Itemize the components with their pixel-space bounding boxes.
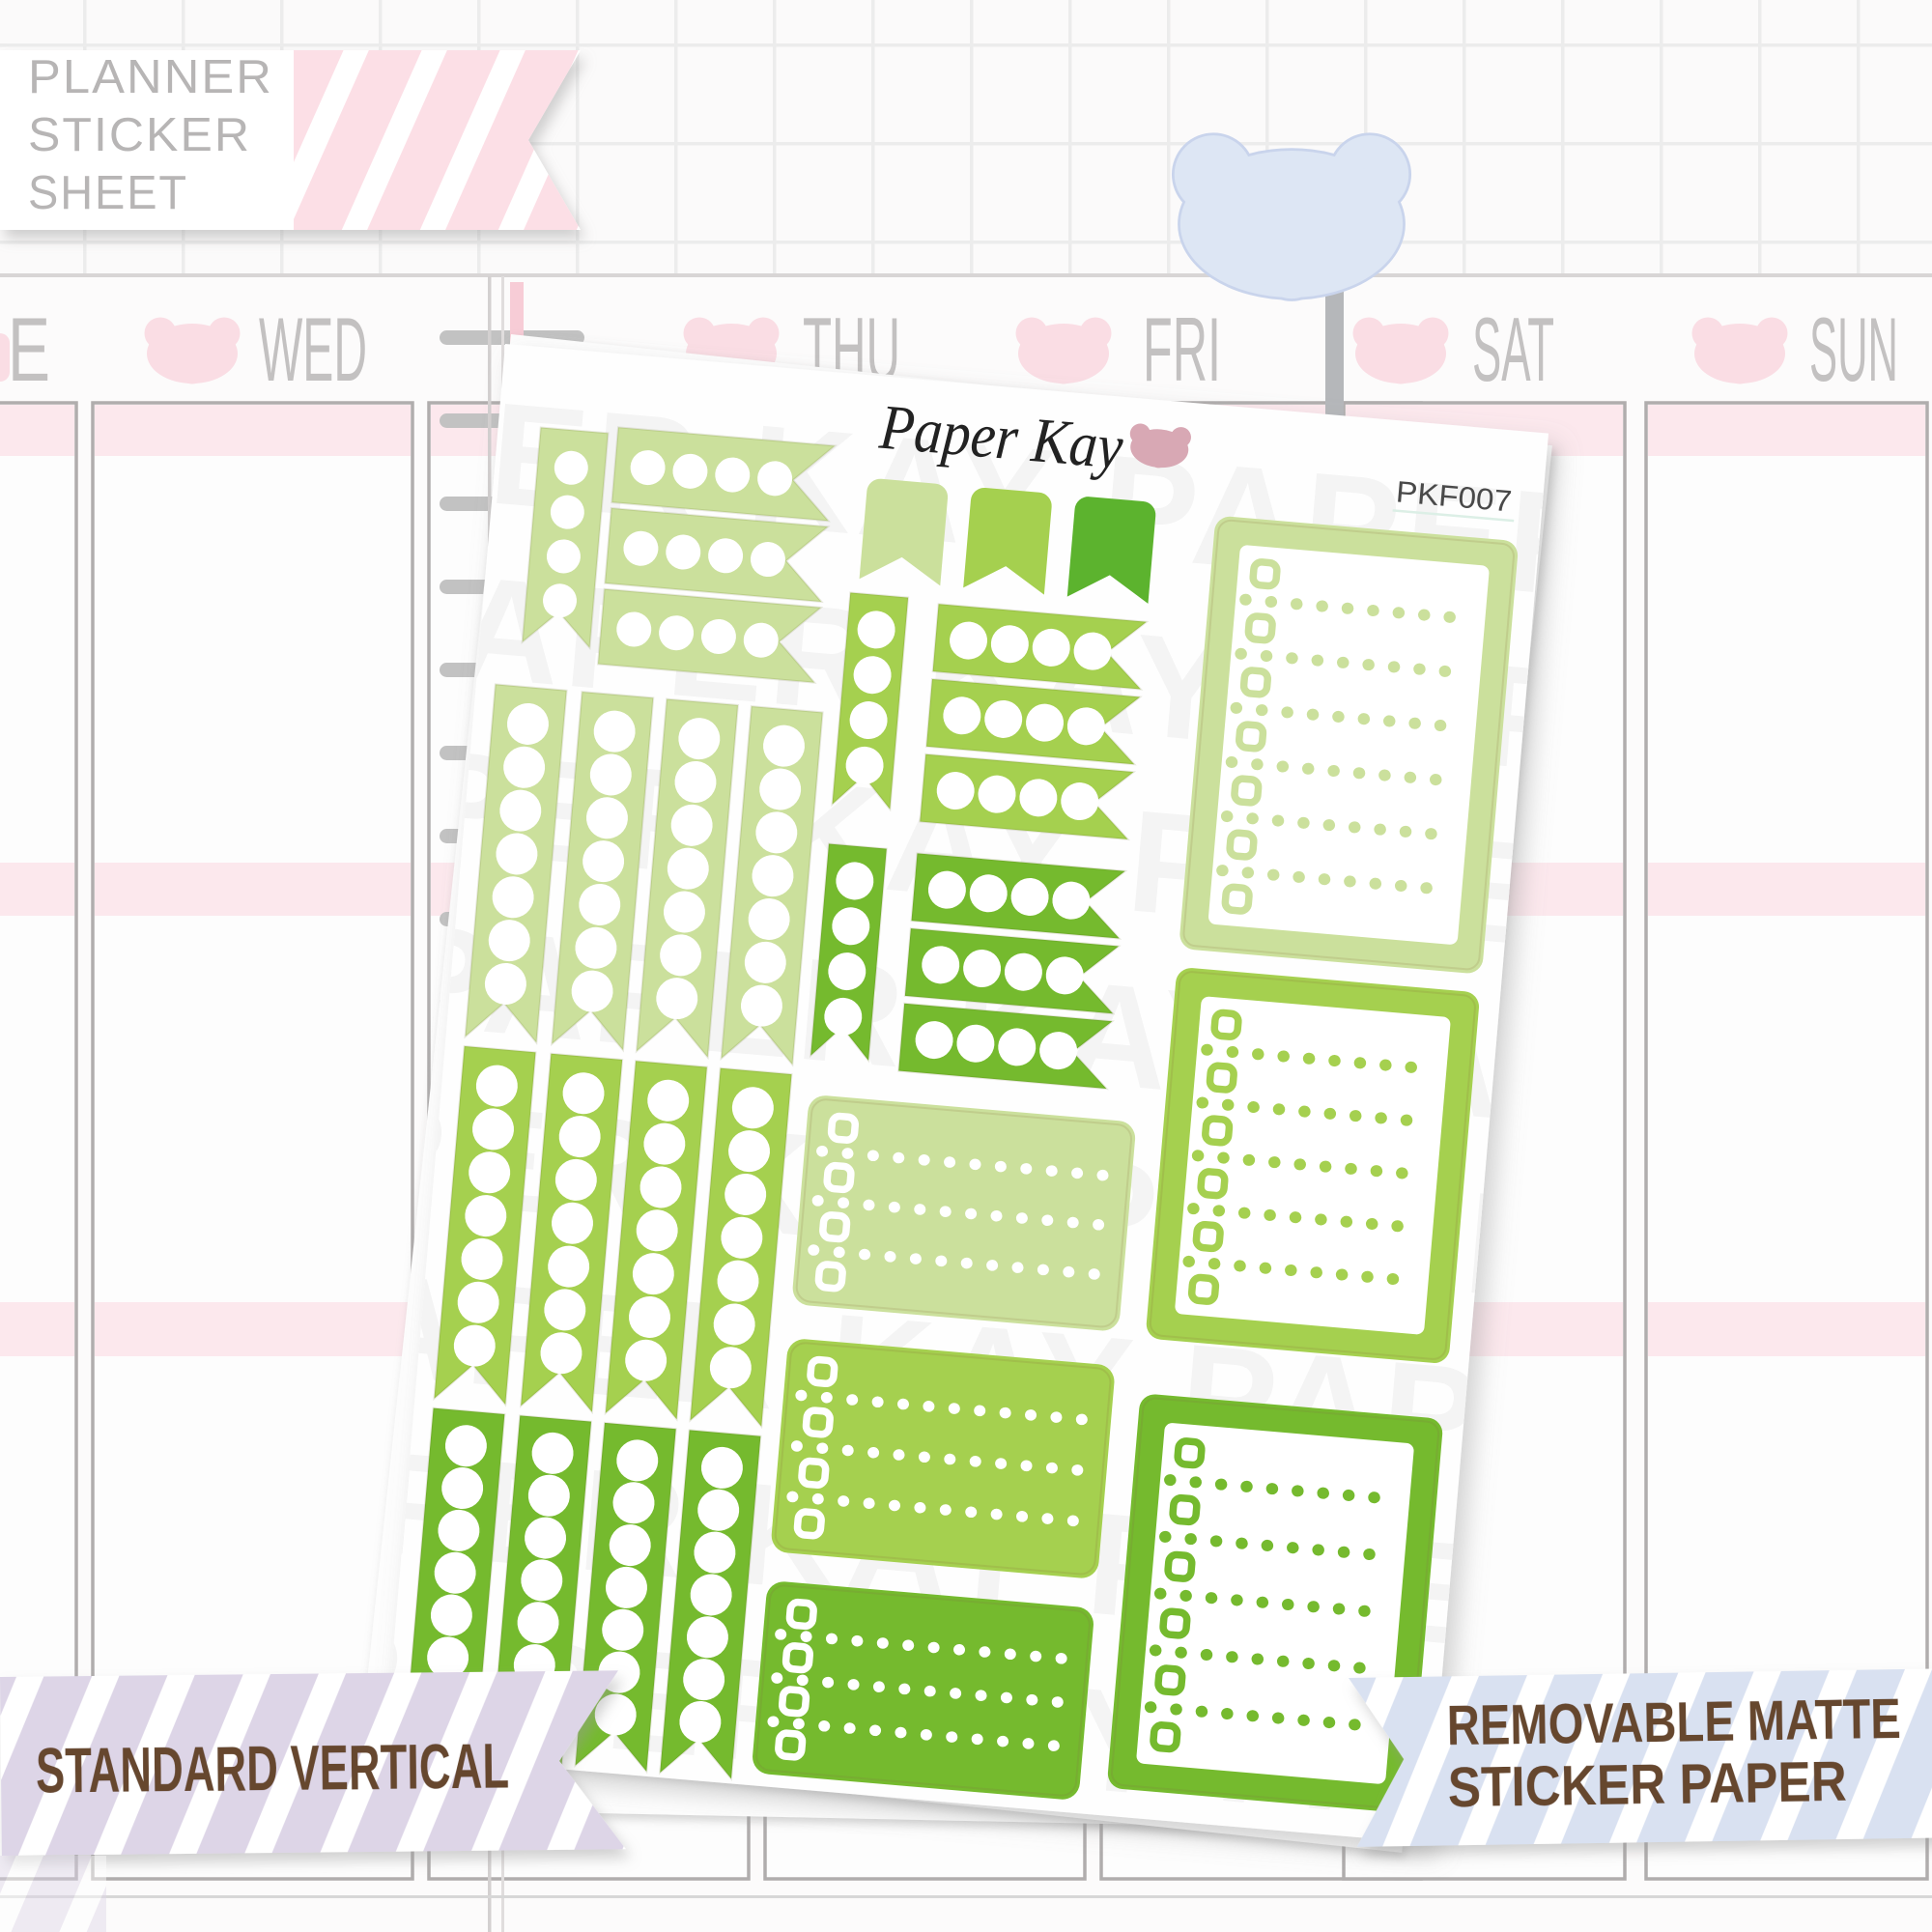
svg-text:REMOVABLE MATTE: REMOVABLE MATTE bbox=[1446, 1688, 1901, 1757]
svg-text:E: E bbox=[8, 298, 50, 400]
svg-text:SHEET: SHEET bbox=[28, 167, 188, 219]
svg-text:STICKER PAPER: STICKER PAPER bbox=[1447, 1750, 1847, 1819]
svg-text:PLANNER: PLANNER bbox=[28, 51, 273, 103]
svg-text:STANDARD VERTICAL: STANDARD VERTICAL bbox=[36, 1729, 510, 1805]
svg-text:SAT: SAT bbox=[1472, 298, 1554, 400]
svg-text:FRI: FRI bbox=[1143, 298, 1221, 400]
svg-text:STICKER: STICKER bbox=[28, 109, 251, 161]
svg-text:WED: WED bbox=[259, 298, 367, 400]
svg-text:SUN: SUN bbox=[1809, 298, 1898, 400]
